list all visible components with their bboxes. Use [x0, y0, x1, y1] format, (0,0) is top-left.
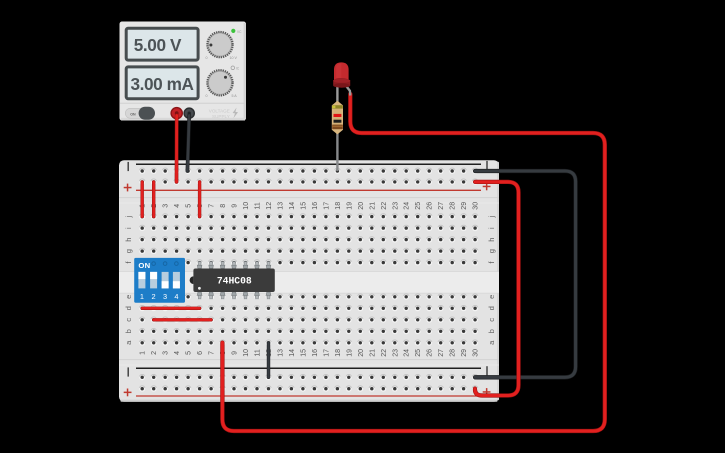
svg-text:24: 24	[404, 202, 411, 210]
svg-text:23: 23	[392, 349, 399, 357]
svg-text:74HC08: 74HC08	[217, 276, 252, 287]
svg-text:d: d	[124, 306, 133, 310]
svg-text:17: 17	[323, 349, 330, 357]
svg-text:24: 24	[404, 349, 411, 357]
svg-text:h: h	[487, 237, 496, 241]
svg-text:d: d	[487, 306, 496, 310]
svg-text:1: 1	[140, 351, 147, 355]
svg-text:26: 26	[427, 349, 434, 357]
svg-text:8: 8	[220, 204, 227, 208]
svg-text:18: 18	[335, 202, 342, 210]
svg-text:e: e	[124, 295, 133, 299]
svg-text:9: 9	[232, 204, 239, 208]
svg-text:5: 5	[186, 351, 193, 355]
svg-text:2: 2	[151, 351, 158, 355]
svg-text:26: 26	[427, 202, 434, 210]
svg-text:ON: ON	[138, 261, 150, 270]
svg-text:20: 20	[358, 202, 365, 210]
svg-text:15: 15	[300, 349, 307, 357]
svg-text:22: 22	[381, 349, 388, 357]
svg-text:21: 21	[369, 349, 376, 357]
svg-text:19: 19	[346, 349, 353, 357]
svg-text:0: 0	[206, 56, 208, 60]
svg-text:12: 12	[266, 202, 273, 210]
svg-text:VC: VC	[237, 30, 242, 34]
svg-text:h: h	[124, 237, 133, 241]
svg-text:22: 22	[381, 202, 388, 210]
svg-text:j: j	[487, 215, 496, 218]
svg-text:18: 18	[335, 349, 342, 357]
svg-text:0: 0	[206, 94, 208, 98]
svg-text:16: 16	[312, 202, 319, 210]
svg-text:11: 11	[255, 202, 262, 209]
svg-text:10: 10	[243, 349, 250, 357]
svg-text:3: 3	[163, 351, 170, 355]
svg-text:3: 3	[163, 292, 167, 301]
svg-text:10 V: 10 V	[230, 56, 238, 60]
svg-text:b: b	[487, 329, 496, 333]
svg-text:23: 23	[392, 202, 399, 210]
svg-text:19: 19	[346, 202, 353, 210]
svg-text:j: j	[124, 215, 133, 218]
svg-text:10: 10	[243, 202, 250, 210]
svg-text:7: 7	[209, 351, 216, 355]
svg-text:3: 3	[163, 204, 170, 208]
svg-text:14: 14	[289, 202, 296, 210]
svg-text:25: 25	[415, 202, 422, 210]
svg-text:5 A: 5 A	[232, 94, 238, 98]
svg-text:2: 2	[152, 292, 156, 301]
svg-text:16: 16	[312, 349, 319, 357]
svg-text:6: 6	[197, 351, 204, 355]
svg-text:g: g	[124, 249, 133, 253]
svg-text:29: 29	[461, 202, 468, 210]
svg-text:14: 14	[289, 349, 296, 357]
svg-text:4: 4	[174, 204, 181, 208]
svg-text:28: 28	[450, 349, 457, 357]
svg-text:4: 4	[174, 351, 181, 355]
svg-text:28: 28	[450, 202, 457, 210]
svg-text:4: 4	[174, 292, 178, 301]
svg-text:21: 21	[369, 202, 376, 210]
svg-text:30: 30	[473, 349, 480, 357]
svg-text:3.00 mA: 3.00 mA	[130, 74, 193, 94]
svg-text:13: 13	[278, 202, 285, 210]
svg-text:c: c	[124, 318, 133, 322]
svg-text:c: c	[487, 318, 496, 322]
svg-text:20: 20	[358, 349, 365, 357]
svg-text:15: 15	[300, 202, 307, 210]
svg-text:1: 1	[140, 292, 144, 301]
svg-text:29: 29	[461, 349, 468, 357]
svg-text:b: b	[124, 329, 133, 333]
svg-text:25: 25	[415, 349, 422, 357]
svg-text:9: 9	[232, 351, 239, 355]
svg-text:30: 30	[473, 202, 480, 210]
svg-text:11: 11	[255, 349, 262, 356]
svg-text:ON: ON	[130, 112, 136, 116]
svg-text:27: 27	[438, 202, 445, 210]
svg-text:SUPPLY: SUPPLY	[212, 114, 230, 119]
svg-text:7: 7	[209, 204, 216, 208]
svg-text:5: 5	[186, 204, 193, 208]
svg-text:27: 27	[438, 349, 445, 357]
svg-text:g: g	[487, 249, 496, 253]
svg-text:e: e	[487, 295, 496, 299]
svg-text:13: 13	[278, 349, 285, 357]
svg-text:5.00 V: 5.00 V	[134, 35, 182, 55]
svg-text:17: 17	[323, 202, 330, 210]
